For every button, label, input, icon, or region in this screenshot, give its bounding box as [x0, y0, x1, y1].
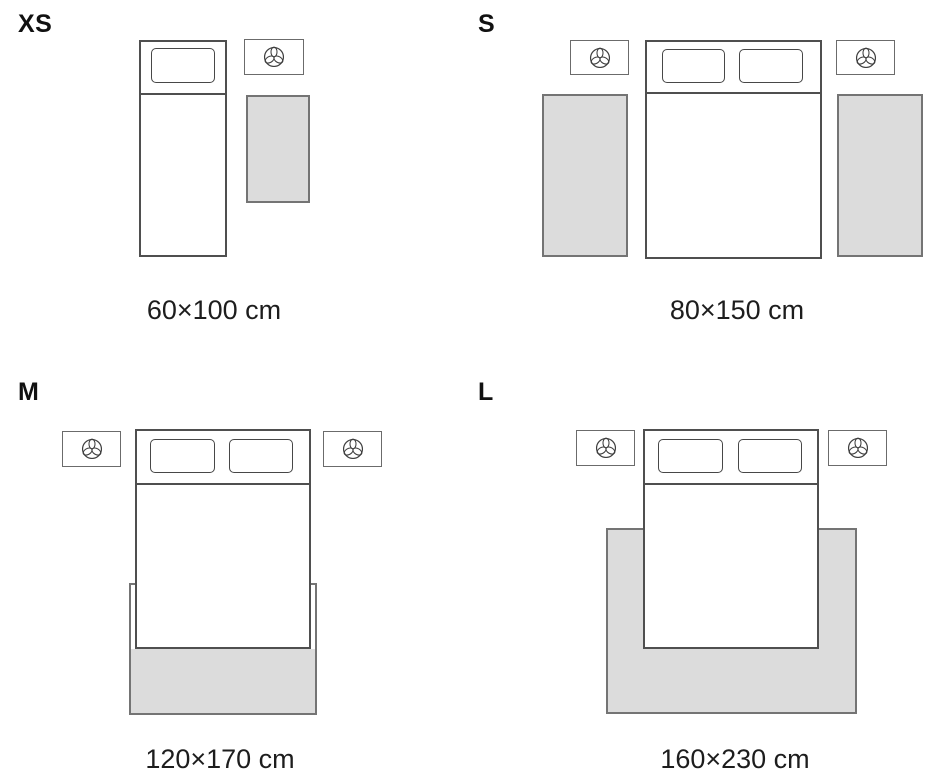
- pillow: [150, 439, 215, 473]
- nightstand: [62, 431, 121, 467]
- pillow: [658, 439, 723, 473]
- nightstand: [828, 430, 887, 466]
- headboard-divider-line: [137, 483, 309, 485]
- plant-icon: [260, 43, 288, 71]
- headboard-divider-line: [647, 92, 820, 94]
- headboard-divider-line: [645, 483, 817, 485]
- nightstand: [244, 39, 304, 75]
- rug-size-guide: XS 60×100 cm S: [0, 0, 940, 780]
- rug: [542, 94, 628, 257]
- size-label-l: L: [478, 380, 494, 405]
- size-label-m: M: [18, 380, 39, 405]
- bed-double: [135, 429, 311, 649]
- bed-double: [645, 40, 822, 259]
- size-caption-xs: 60×100 cm: [64, 297, 364, 324]
- nightstand: [570, 40, 629, 75]
- nightstand: [836, 40, 895, 75]
- rug: [246, 95, 310, 203]
- nightstand: [576, 430, 635, 466]
- rug: [837, 94, 923, 257]
- pillow: [151, 48, 215, 83]
- plant-icon: [339, 435, 367, 463]
- pillow: [738, 439, 802, 473]
- size-label-s: S: [478, 12, 495, 37]
- plant-icon: [78, 435, 106, 463]
- size-caption-s: 80×150 cm: [587, 297, 887, 324]
- pillow: [739, 49, 803, 83]
- headboard-divider-line: [141, 93, 225, 95]
- size-caption-l: 160×230 cm: [585, 746, 885, 773]
- plant-icon: [844, 434, 872, 462]
- bed-single: [139, 40, 227, 257]
- pillow: [229, 439, 293, 473]
- rug-exposed-area: [131, 649, 315, 713]
- plant-icon: [586, 44, 614, 72]
- plant-icon: [852, 44, 880, 72]
- size-caption-m: 120×170 cm: [70, 746, 370, 773]
- size-label-xs: XS: [18, 12, 52, 37]
- pillow: [662, 49, 725, 83]
- nightstand: [323, 431, 382, 467]
- plant-icon: [592, 434, 620, 462]
- bed-double: [643, 429, 819, 649]
